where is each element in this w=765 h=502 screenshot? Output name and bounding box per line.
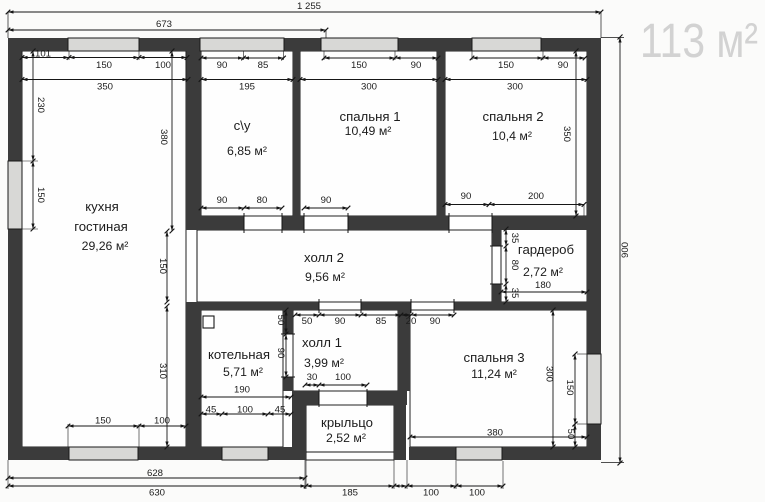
svg-text:100: 100 [335, 372, 351, 383]
svg-text:300: 300 [544, 366, 555, 382]
svg-text:2,52 м²: 2,52 м² [326, 431, 366, 445]
svg-text:100: 100 [155, 60, 171, 71]
svg-text:195: 195 [239, 82, 255, 93]
svg-text:310: 310 [157, 363, 168, 379]
svg-text:90: 90 [217, 195, 228, 206]
svg-text:85: 85 [258, 60, 269, 71]
svg-text:185: 185 [342, 488, 358, 499]
svg-text:150: 150 [96, 60, 112, 71]
svg-text:20: 20 [406, 316, 417, 327]
svg-text:90: 90 [217, 60, 228, 71]
svg-text:628: 628 [147, 468, 163, 479]
svg-text:900: 900 [620, 242, 631, 258]
svg-text:190: 190 [234, 385, 250, 396]
svg-text:300: 300 [507, 82, 523, 93]
svg-text:90: 90 [461, 191, 472, 202]
svg-text:35: 35 [509, 233, 520, 244]
svg-text:100: 100 [469, 488, 485, 499]
svg-text:200: 200 [528, 191, 544, 202]
svg-text:гостиная: гостиная [74, 219, 128, 234]
svg-text:150: 150 [498, 60, 514, 71]
svg-text:230: 230 [35, 97, 46, 113]
svg-text:300: 300 [361, 82, 377, 93]
svg-text:350: 350 [97, 82, 113, 93]
svg-text:350: 350 [561, 126, 572, 142]
svg-text:холл 1: холл 1 [302, 335, 342, 350]
svg-text:100: 100 [423, 488, 439, 499]
svg-text:1 255: 1 255 [297, 1, 321, 12]
svg-text:3,99 м²: 3,99 м² [304, 356, 344, 370]
svg-text:150: 150 [157, 258, 168, 274]
svg-text:крыльцо: крыльцо [321, 415, 373, 430]
svg-text:10,49 м²: 10,49 м² [345, 124, 392, 138]
svg-text:50: 50 [302, 316, 313, 327]
svg-text:101: 101 [35, 49, 51, 60]
svg-text:спальня 1: спальня 1 [339, 109, 400, 124]
svg-text:150: 150 [95, 416, 111, 427]
svg-text:85: 85 [376, 316, 387, 327]
svg-text:380: 380 [158, 129, 169, 145]
svg-text:гардероб: гардероб [518, 242, 574, 257]
svg-text:90: 90 [558, 60, 569, 71]
svg-text:150: 150 [35, 187, 46, 203]
svg-text:с\у: с\у [234, 118, 251, 133]
svg-text:спальня 2: спальня 2 [482, 109, 543, 124]
svg-text:45: 45 [275, 405, 286, 416]
svg-text:50: 50 [275, 315, 286, 326]
svg-text:5,71 м²: 5,71 м² [223, 365, 263, 379]
svg-text:9,56 м²: 9,56 м² [305, 270, 345, 284]
svg-text:29,26 м²: 29,26 м² [82, 239, 129, 253]
svg-text:6,85 м²: 6,85 м² [227, 144, 267, 158]
svg-text:150: 150 [564, 379, 575, 395]
svg-text:кухня: кухня [85, 199, 119, 214]
svg-text:90: 90 [411, 60, 422, 71]
svg-text:630: 630 [149, 488, 165, 499]
svg-text:113 м²: 113 м² [640, 15, 758, 68]
svg-text:котельная: котельная [208, 347, 270, 362]
svg-text:90: 90 [275, 348, 286, 359]
svg-text:11,24 м²: 11,24 м² [471, 367, 517, 381]
svg-text:спальня 3: спальня 3 [463, 350, 524, 365]
svg-text:35: 35 [509, 288, 520, 299]
svg-text:150: 150 [351, 60, 367, 71]
svg-text:673: 673 [156, 19, 172, 30]
svg-text:90: 90 [335, 316, 346, 327]
svg-text:90: 90 [321, 195, 332, 206]
svg-text:80: 80 [257, 195, 268, 206]
svg-text:10,4 м²: 10,4 м² [492, 129, 532, 143]
svg-text:30: 30 [307, 372, 318, 383]
svg-text:90: 90 [430, 316, 441, 327]
svg-text:80: 80 [509, 260, 520, 271]
svg-text:100: 100 [154, 416, 170, 427]
svg-text:180: 180 [535, 280, 551, 291]
svg-text:50: 50 [565, 429, 576, 440]
svg-text:холл 2: холл 2 [304, 250, 344, 265]
svg-text:380: 380 [487, 428, 503, 439]
svg-text:45: 45 [206, 405, 217, 416]
svg-text:2,72 м²: 2,72 м² [523, 265, 563, 279]
svg-text:100: 100 [237, 405, 253, 416]
